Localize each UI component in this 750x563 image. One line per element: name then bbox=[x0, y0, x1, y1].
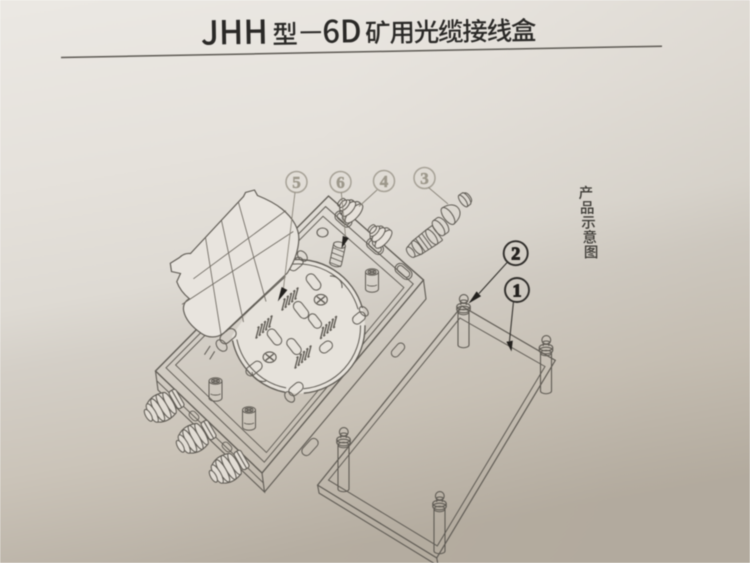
svg-text:6: 6 bbox=[336, 173, 345, 192]
svg-text:2: 2 bbox=[511, 244, 520, 264]
svg-text:3: 3 bbox=[420, 169, 429, 188]
svg-text:4: 4 bbox=[380, 172, 389, 191]
svg-text:5: 5 bbox=[292, 173, 301, 192]
svg-text:1: 1 bbox=[513, 280, 522, 300]
